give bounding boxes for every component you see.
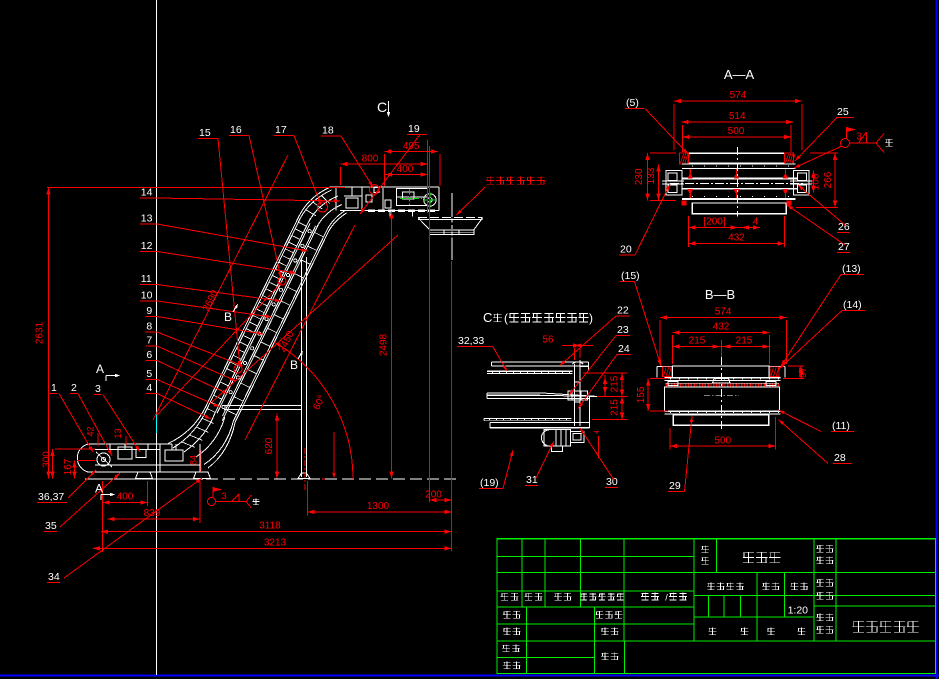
svg-text:215: 215 [610, 399, 621, 416]
svg-text:155: 155 [636, 386, 647, 403]
svg-text:19: 19 [408, 123, 420, 135]
svg-text:(13): (13) [842, 263, 861, 275]
svg-text:4: 4 [594, 430, 601, 434]
svg-text:215: 215 [610, 375, 621, 392]
svg-text:16: 16 [230, 124, 242, 136]
svg-text:31: 31 [526, 474, 538, 486]
svg-text:9: 9 [146, 305, 152, 317]
svg-text:(5): (5) [626, 97, 639, 109]
svg-text:5: 5 [146, 368, 152, 380]
svg-text:(11): (11) [832, 420, 850, 432]
svg-text:6: 6 [146, 349, 152, 361]
svg-text:500: 500 [714, 436, 731, 447]
svg-text:514: 514 [729, 111, 746, 122]
svg-text:1300: 1300 [367, 501, 390, 512]
svg-text:106: 106 [811, 173, 822, 190]
svg-text:42: 42 [86, 426, 96, 436]
svg-text:26: 26 [838, 221, 850, 233]
svg-text:215: 215 [736, 336, 753, 347]
svg-text:3: 3 [856, 132, 862, 143]
svg-text:): ) [589, 311, 593, 325]
svg-text:800: 800 [362, 154, 379, 165]
svg-text:230: 230 [634, 168, 645, 185]
svg-text:400: 400 [397, 164, 414, 175]
svg-text:3: 3 [95, 383, 101, 395]
svg-text:432: 432 [728, 233, 745, 244]
svg-text:1:20: 1:20 [788, 605, 809, 617]
svg-text:215: 215 [689, 336, 706, 347]
svg-text:300: 300 [42, 451, 53, 468]
svg-text:[200]: [200] [703, 217, 725, 228]
svg-text:8: 8 [146, 321, 152, 333]
svg-text:C: C [483, 310, 492, 325]
svg-text:200: 200 [425, 490, 442, 501]
svg-text:A: A [95, 482, 103, 496]
svg-text:500: 500 [728, 126, 745, 137]
svg-text:32,33: 32,33 [458, 335, 484, 347]
svg-text:22: 22 [617, 305, 629, 317]
svg-text:20: 20 [620, 244, 632, 256]
svg-text:30: 30 [606, 476, 618, 488]
svg-text:3118: 3118 [259, 521, 281, 532]
svg-text:167: 167 [63, 458, 74, 475]
svg-text:25: 25 [837, 106, 849, 118]
svg-text:A—A: A—A [724, 67, 755, 82]
svg-text:18: 18 [322, 125, 334, 137]
svg-text:84: 84 [189, 455, 199, 465]
svg-text:(19): (19) [480, 477, 499, 489]
svg-text:133: 133 [646, 167, 657, 184]
svg-text:1: 1 [51, 382, 57, 394]
svg-text:(14): (14) [843, 299, 862, 311]
svg-text:574: 574 [715, 307, 732, 318]
svg-text:23: 23 [617, 324, 629, 336]
svg-text:2: 2 [71, 382, 77, 394]
svg-text:620: 620 [264, 437, 275, 454]
svg-text:B: B [224, 310, 232, 324]
svg-text:97: 97 [798, 367, 809, 379]
svg-text:4: 4 [753, 217, 759, 228]
svg-text:36,37: 36,37 [38, 491, 64, 503]
svg-text:27: 27 [838, 241, 850, 253]
svg-text:56: 56 [542, 335, 554, 346]
svg-text:432: 432 [713, 322, 730, 333]
svg-text:14: 14 [141, 187, 153, 199]
svg-text:(: ( [504, 311, 508, 325]
svg-text:17: 17 [275, 124, 287, 136]
svg-text:28: 28 [834, 452, 846, 464]
svg-text:13: 13 [113, 428, 123, 438]
svg-text:A: A [96, 362, 104, 376]
svg-text:266: 266 [823, 171, 834, 188]
svg-text:3: 3 [221, 491, 226, 502]
svg-text:15: 15 [199, 127, 211, 139]
svg-text:2631: 2631 [35, 321, 46, 344]
svg-text:574: 574 [730, 90, 747, 101]
svg-text:35: 35 [45, 520, 57, 532]
svg-text:(15): (15) [621, 270, 640, 282]
svg-text:4: 4 [146, 382, 152, 394]
svg-text:11: 11 [141, 273, 152, 285]
svg-text:34: 34 [48, 571, 60, 583]
svg-text:12: 12 [141, 240, 153, 252]
svg-text:13: 13 [141, 213, 153, 225]
svg-text:7: 7 [146, 335, 152, 347]
svg-text:B—B: B—B [705, 287, 735, 302]
svg-text:B: B [290, 358, 298, 372]
svg-text:10: 10 [141, 290, 153, 302]
svg-text:2498: 2498 [379, 333, 390, 356]
svg-text:29: 29 [669, 480, 681, 492]
svg-text:400: 400 [117, 492, 134, 503]
svg-text:3213: 3213 [264, 537, 287, 548]
svg-text:24: 24 [618, 343, 630, 355]
svg-text:C: C [377, 99, 387, 115]
